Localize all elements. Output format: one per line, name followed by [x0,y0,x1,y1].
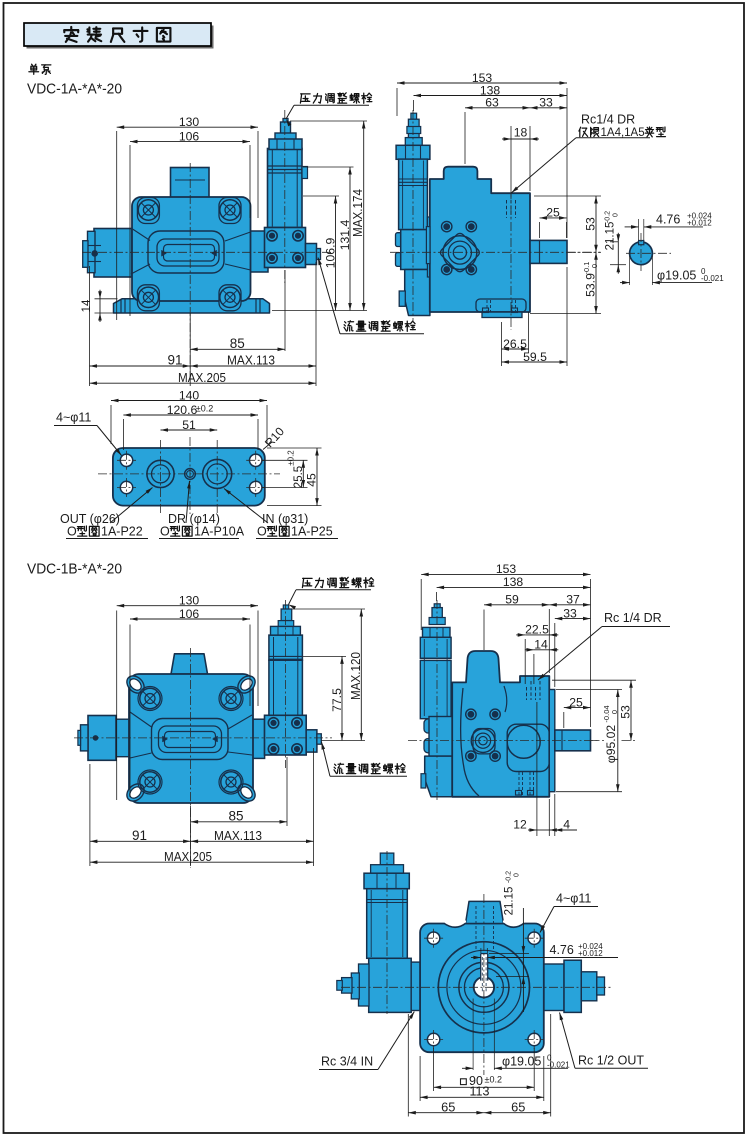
svg-text:21.15: 21.15 [504,887,516,916]
svg-text:1A-P22: 1A-P22 [101,525,143,539]
svg-text:MAX.120: MAX.120 [348,652,363,700]
svg-text:45: 45 [305,473,319,487]
svg-text:140: 140 [179,388,200,402]
svg-text:φ19.05: φ19.05 [657,268,696,282]
svg-text:MAX.205: MAX.205 [178,370,226,385]
svg-text:MAX.113: MAX.113 [227,353,275,368]
svg-text:12: 12 [513,818,527,832]
svg-text:0: 0 [514,873,521,877]
svg-text:VDC-1B-*A*-20: VDC-1B-*A*-20 [27,562,122,578]
svg-text:+0.012: +0.012 [687,218,712,227]
svg-text:33: 33 [563,606,577,620]
svg-text:Rc 1/2 OUT: Rc 1/2 OUT [578,1054,644,1068]
svg-text:4.76: 4.76 [656,213,680,227]
svg-text:1A-P10A: 1A-P10A [194,525,245,539]
svg-text:O: O [257,525,267,539]
svg-text:130: 130 [179,594,200,608]
svg-text:77.5: 77.5 [330,688,344,712]
svg-text:153: 153 [496,562,517,576]
svg-text:26.5: 26.5 [503,337,527,351]
svg-text:18: 18 [514,125,528,139]
svg-text:106.9: 106.9 [323,238,337,269]
svg-text:-0.04: -0.04 [602,705,611,722]
svg-text:MAX.113: MAX.113 [214,828,262,843]
svg-text:±0.2: ±0.2 [287,450,296,466]
svg-text:21.15: 21.15 [605,222,617,251]
svg-text:130: 130 [179,115,200,129]
svg-text:33: 33 [539,96,553,110]
svg-text:138: 138 [503,575,524,589]
svg-text:91: 91 [167,353,182,368]
svg-text:131.4: 131.4 [338,220,352,251]
svg-text:65: 65 [511,1099,525,1114]
svg-text:0: 0 [610,710,619,714]
svg-text:1A4,1A5: 1A4,1A5 [601,127,645,139]
svg-text:59: 59 [505,593,519,607]
svg-text:59.5: 59.5 [523,350,547,364]
svg-text:O: O [160,525,170,539]
svg-text:φ95.02: φ95.02 [604,725,618,764]
svg-text:14: 14 [81,299,93,312]
svg-text:4: 4 [563,818,570,832]
svg-text:-0.1: -0.1 [582,262,591,275]
svg-text:±0.2: ±0.2 [196,404,213,414]
svg-text:120.6: 120.6 [167,403,198,417]
svg-text:VDC-1A-*A*-20: VDC-1A-*A*-20 [27,82,122,98]
svg-text:65: 65 [441,1099,455,1114]
svg-text:25.5: 25.5 [293,466,305,488]
svg-text:85: 85 [230,336,245,351]
svg-text:+0.012: +0.012 [578,949,603,958]
svg-text:1A-P25: 1A-P25 [291,525,333,539]
svg-text:113: 113 [470,1084,490,1098]
svg-text:14: 14 [534,638,548,652]
svg-text:63: 63 [485,96,499,110]
svg-text:Rc 3/4 IN: Rc 3/4 IN [321,1055,373,1069]
svg-text:Rc 1/4 DR: Rc 1/4 DR [604,611,662,625]
svg-text:53: 53 [619,705,633,719]
svg-text:0: 0 [613,213,620,217]
svg-text:106: 106 [179,129,200,143]
svg-text:53: 53 [584,217,598,231]
svg-text:53.9: 53.9 [584,273,598,297]
svg-text:±0.2: ±0.2 [485,1075,502,1085]
svg-text:85: 85 [228,809,243,824]
svg-text:Rc1/4 DR: Rc1/4 DR [581,112,635,126]
svg-text:O: O [67,525,77,539]
svg-text:φ19.05: φ19.05 [502,1055,541,1069]
svg-text:25: 25 [569,695,583,709]
svg-text:MAX.174: MAX.174 [350,189,365,237]
svg-text:51: 51 [182,418,196,432]
svg-text:4~φ11: 4~φ11 [556,892,591,906]
svg-text:22.5: 22.5 [525,623,549,637]
svg-text:25: 25 [546,206,560,220]
svg-text:0: 0 [590,264,599,268]
svg-text:-0.021: -0.021 [701,274,724,283]
svg-text:-0.2: -0.2 [605,211,612,223]
svg-text:MAX.205: MAX.205 [164,849,212,864]
svg-text:37: 37 [566,593,580,607]
svg-text:-0.2: -0.2 [506,871,513,883]
svg-text:91: 91 [132,828,147,843]
svg-text:4~φ11: 4~φ11 [56,411,91,425]
svg-text:4.76: 4.76 [550,943,574,957]
svg-text:106: 106 [179,607,200,621]
